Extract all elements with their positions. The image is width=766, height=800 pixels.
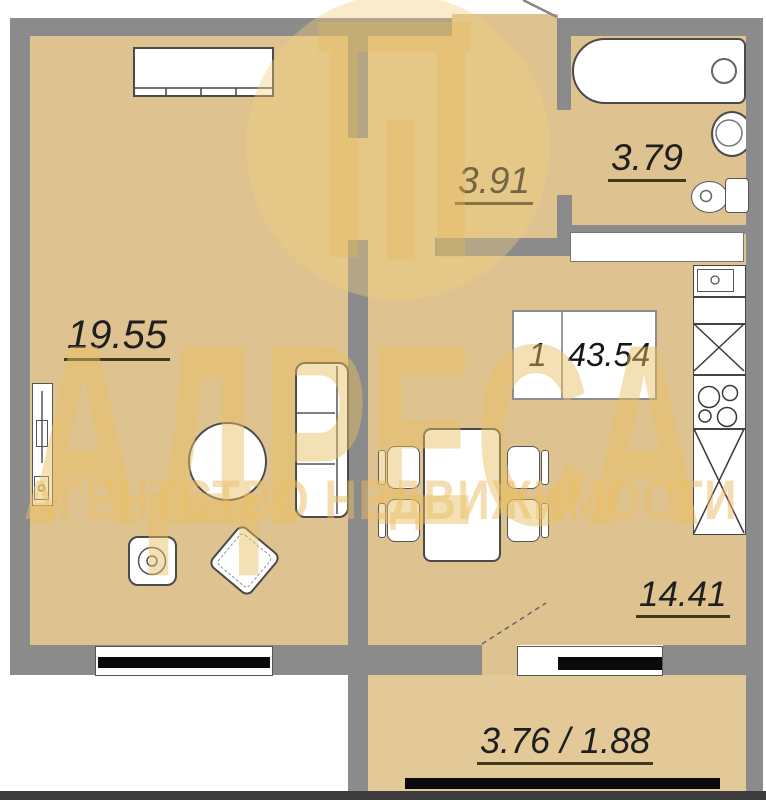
bathtub-drain-icon xyxy=(712,59,736,83)
apartment-summary-box: 1 43.54 xyxy=(512,310,657,400)
tv-unit-knob xyxy=(39,485,45,491)
counter-x-icon xyxy=(694,324,744,371)
sofa-cushion-lines xyxy=(297,366,337,514)
balcony-area-label: 3.76 / 1.88 xyxy=(477,723,653,765)
kitchen-sink-drain-icon xyxy=(711,276,719,284)
rooms-count: 1 xyxy=(514,312,563,398)
total-area: 43.54 xyxy=(563,312,655,398)
floor-plan: 19.55 3.91 3.79 14.41 3.76 / 1.88 1 43.5… xyxy=(0,0,766,800)
linework-overlay xyxy=(0,0,766,800)
kitchen-area-label: 14.41 xyxy=(636,577,730,618)
stove-hob-icon xyxy=(699,386,738,427)
wardrobe-doors-lines xyxy=(134,88,272,97)
living-area-label: 19.55 xyxy=(64,315,170,361)
balcony-door-swing-icon xyxy=(482,603,546,644)
toilet-flush-icon xyxy=(701,191,712,202)
entrance-door-icon xyxy=(523,0,557,17)
sink-bowl-icon xyxy=(716,120,742,146)
hallway-area-label: 3.91 xyxy=(455,162,533,205)
side-table-circles-icon xyxy=(139,548,166,575)
counter-x-icon xyxy=(694,429,744,533)
bathroom-area-label: 3.79 xyxy=(608,139,686,182)
